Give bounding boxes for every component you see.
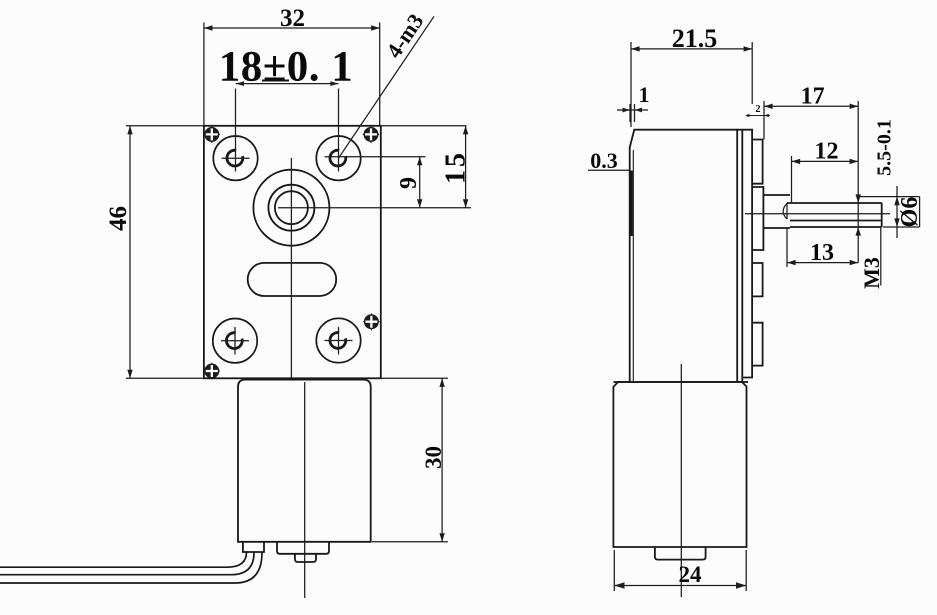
svg-text:1: 1 [639, 82, 650, 107]
svg-text:13: 13 [810, 240, 834, 266]
svg-text:46: 46 [105, 206, 132, 231]
svg-text:24: 24 [679, 562, 703, 587]
svg-text:M3: M3 [859, 257, 884, 289]
svg-text:32: 32 [280, 5, 305, 32]
svg-text:15: 15 [441, 150, 472, 184]
svg-text:2: 2 [756, 104, 761, 115]
svg-text:21.5: 21.5 [672, 24, 718, 53]
svg-text:5.5-0.1: 5.5-0.1 [874, 119, 896, 176]
svg-text:9: 9 [396, 177, 422, 189]
svg-text:Ø6: Ø6 [897, 197, 923, 228]
svg-text:0.3: 0.3 [590, 148, 618, 173]
svg-text:30: 30 [421, 446, 446, 469]
svg-text:17: 17 [801, 84, 825, 110]
svg-text:18±0. 1: 18±0. 1 [219, 44, 354, 91]
svg-text:12: 12 [815, 139, 839, 165]
